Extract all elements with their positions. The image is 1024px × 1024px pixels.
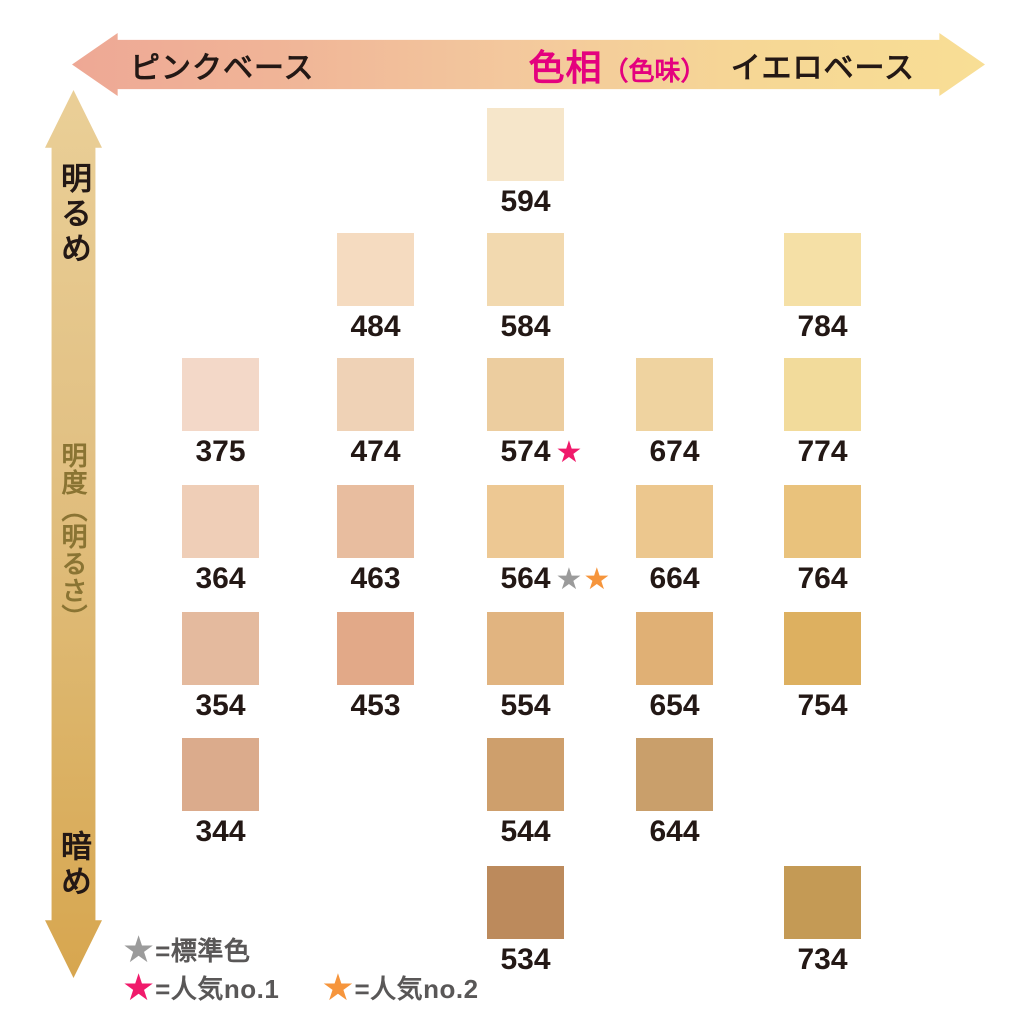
legend-standard-label: =標準色	[155, 931, 250, 968]
shade-code-label: 364	[142, 562, 299, 596]
shade-cell-654: 654	[636, 612, 713, 722]
legend-no2-label: =人気no.2	[354, 969, 478, 1006]
shade-cell-644: 644	[636, 738, 713, 848]
shade-swatch-375	[182, 358, 259, 431]
shade-cell-453: 453	[337, 612, 414, 722]
hue-axis-left-label: ピンクベース	[130, 43, 315, 87]
brightness-axis-bottom-label: 暗め	[51, 830, 96, 900]
shade-cell-344: 344	[182, 738, 259, 848]
shade-cell-584: 584	[487, 233, 564, 343]
shade-marker-stars: ★	[556, 435, 584, 470]
shade-swatch-474	[337, 358, 414, 431]
shade-code-label: 654	[596, 689, 753, 723]
shade-code-label: 574★	[447, 435, 604, 469]
brightness-axis-arrow: 明るめ 明度（明るさ） 暗め	[45, 90, 102, 978]
hue-axis-right-label: イエロベース	[731, 43, 915, 87]
brightness-axis-title: 明度（明るさ）	[55, 442, 92, 631]
shade-code-label: 734	[744, 943, 901, 977]
popularity-no1-star-icon: ★	[122, 969, 155, 1006]
shade-code-label: 344	[142, 815, 299, 849]
shade-cell-534: 534	[487, 866, 564, 976]
shade-cell-484: 484	[337, 233, 414, 343]
shade-swatch-774	[784, 358, 861, 431]
shade-code-label: 453	[297, 689, 454, 723]
shade-code-label: 354	[142, 689, 299, 723]
shade-cell-734: 734	[784, 866, 861, 976]
shade-swatch-564	[487, 485, 564, 558]
shade-swatch-764	[784, 485, 861, 558]
shade-code-label: 584	[447, 310, 604, 344]
shade-cell-354: 354	[182, 612, 259, 722]
shade-swatch-534	[487, 866, 564, 939]
shade-swatch-754	[784, 612, 861, 685]
shade-code-label: 375	[142, 435, 299, 469]
shade-swatch-344	[182, 738, 259, 811]
shade-cell-474: 474	[337, 358, 414, 468]
legend-item-no1: ★ =人気no.1	[122, 969, 279, 1006]
popularity-no2-star-icon: ★	[321, 969, 354, 1006]
shade-code-label: 474	[297, 435, 454, 469]
shade-swatch-644	[636, 738, 713, 811]
shade-code-label: 644	[596, 815, 753, 849]
legend: ★ =標準色 ★ =人気no.1 ★ =人気no.2	[122, 930, 479, 1006]
shade-code-label: 774	[744, 435, 901, 469]
shade-cell-564: 564★★	[487, 485, 564, 595]
standard-star-icon: ★	[122, 931, 155, 968]
shade-cell-463: 463	[337, 485, 414, 595]
shade-code-label: 784	[744, 310, 901, 344]
legend-no1-label: =人気no.1	[155, 969, 279, 1006]
shade-code-label: 554	[447, 689, 604, 723]
shade-cell-375: 375	[182, 358, 259, 468]
shade-swatch-453	[337, 612, 414, 685]
hue-axis-title: 色相（色味）	[529, 39, 707, 91]
shade-cell-784: 784	[784, 233, 861, 343]
hue-axis-title-sub: （色味）	[603, 56, 707, 86]
shade-swatch-594	[487, 108, 564, 181]
legend-item-standard: ★ =標準色	[122, 931, 250, 968]
shade-code-label: 754	[744, 689, 901, 723]
hue-axis-title-main: 色相	[529, 47, 603, 88]
shade-swatch-554	[487, 612, 564, 685]
shade-cell-674: 674	[636, 358, 713, 468]
shade-code-label: 484	[297, 310, 454, 344]
shade-code-label: 674	[596, 435, 753, 469]
shade-cell-774: 774	[784, 358, 861, 468]
shade-code-label: 564★★	[447, 562, 604, 596]
shade-cell-754: 754	[784, 612, 861, 722]
shade-cell-764: 764	[784, 485, 861, 595]
shade-code-label: 664	[596, 562, 753, 596]
shade-swatch-544	[487, 738, 564, 811]
shade-swatch-484	[337, 233, 414, 306]
shade-code-label: 544	[447, 815, 604, 849]
marker-star-icon: ★	[556, 436, 584, 469]
shade-swatch-784	[784, 233, 861, 306]
hue-axis-arrow: ピンクベース 色相（色味） イエロベース	[72, 33, 985, 96]
shade-swatch-574	[487, 358, 564, 431]
shade-cell-554: 554	[487, 612, 564, 722]
shade-code-label: 764	[744, 562, 901, 596]
shade-swatch-584	[487, 233, 564, 306]
shade-swatch-354	[182, 612, 259, 685]
brightness-axis-top-label: 明るめ	[51, 162, 96, 267]
shade-swatch-674	[636, 358, 713, 431]
shade-swatch-463	[337, 485, 414, 558]
shade-code-label: 463	[297, 562, 454, 596]
shade-map-canvas: ピンクベース 色相（色味） イエロベース 明るめ 明度（明るさ） 暗め 5944…	[0, 0, 1024, 1024]
shade-swatch-364	[182, 485, 259, 558]
marker-star-icon: ★	[556, 563, 584, 596]
legend-item-no2: ★ =人気no.2	[321, 969, 478, 1006]
shade-cell-574: 574★	[487, 358, 564, 468]
shade-cell-594: 594	[487, 108, 564, 218]
shade-cell-664: 664	[636, 485, 713, 595]
shade-cell-364: 364	[182, 485, 259, 595]
shade-code-label: 594	[447, 185, 604, 219]
shade-swatch-654	[636, 612, 713, 685]
shade-swatch-734	[784, 866, 861, 939]
shade-swatch-664	[636, 485, 713, 558]
shade-cell-544: 544	[487, 738, 564, 848]
legend-row-standard: ★ =標準色	[122, 930, 479, 968]
legend-row-popularity: ★ =人気no.1 ★ =人気no.2	[122, 968, 479, 1006]
